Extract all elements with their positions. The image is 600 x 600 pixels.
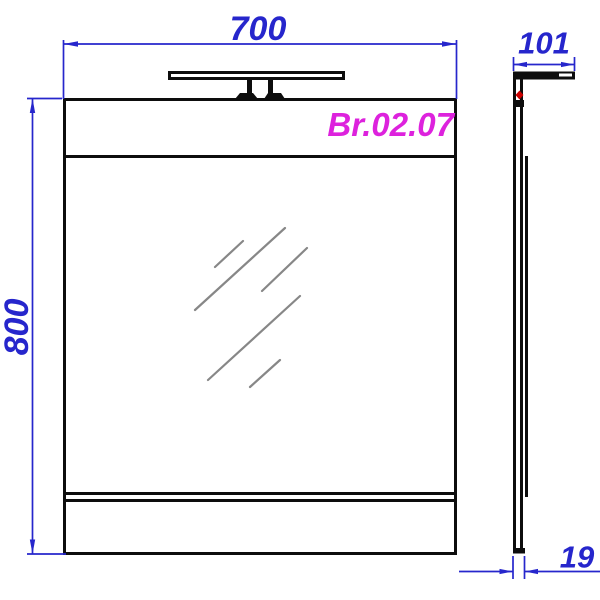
lamp-left-foot <box>235 93 258 99</box>
arrowhead-up <box>30 99 35 114</box>
arrowhead-right <box>500 569 514 574</box>
model-code-label: Br.02.07 <box>327 108 454 141</box>
lamp-side-head-slot <box>559 74 572 77</box>
dimension-width-value: 700 <box>230 12 287 46</box>
side-profile-bottom-cap <box>513 548 525 554</box>
dimension-width <box>64 40 457 99</box>
arrowhead-down <box>30 540 35 555</box>
arrowhead-right <box>442 41 457 46</box>
drawing-canvas <box>0 0 600 600</box>
side-view <box>513 72 575 554</box>
arrowhead-left <box>525 569 539 574</box>
lamp-right-foot <box>264 93 285 99</box>
arrowhead-left <box>514 62 528 67</box>
lamp-front <box>170 73 344 100</box>
arrowhead-left <box>64 41 79 46</box>
arrowhead-right <box>561 62 575 67</box>
mirror-cabinet-outline <box>65 100 456 554</box>
dimension-height-value: 800 <box>0 299 34 356</box>
side-profile-fastener-block <box>516 100 525 107</box>
technical-drawing-mirror-cabinet: 700 800 101 19 Br.02.07 <box>0 0 600 600</box>
dimension-thickness-value: 19 <box>560 542 594 573</box>
dimension-depth-value: 101 <box>518 28 570 59</box>
lamp-bar <box>170 73 344 79</box>
front-view <box>63 100 457 554</box>
